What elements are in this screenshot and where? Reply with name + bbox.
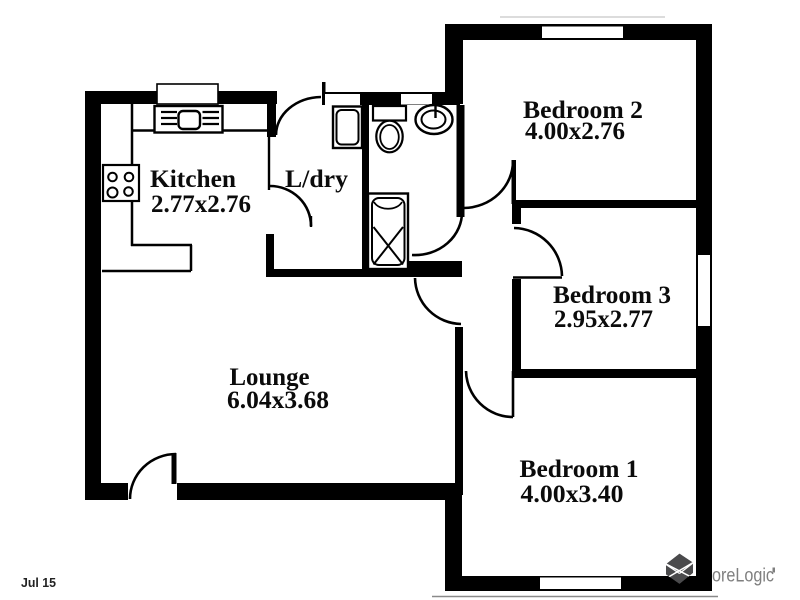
svg-text:Kitchen: Kitchen [150, 166, 236, 193]
svg-text:Bedroom 3: Bedroom 3 [553, 282, 671, 309]
svg-text:6.04x3.68: 6.04x3.68 [227, 387, 329, 414]
svg-text:4.00x3.40: 4.00x3.40 [521, 481, 624, 508]
svg-text:Jul 15: Jul 15 [21, 575, 56, 590]
svg-text:Bedroom 1: Bedroom 1 [520, 456, 639, 483]
svg-text:oreLogic: oreLogic [712, 566, 774, 587]
svg-text:L/dry: L/dry [285, 166, 349, 193]
svg-text:4.00x2.76: 4.00x2.76 [525, 118, 625, 145]
svg-text:2.95x2.77: 2.95x2.77 [554, 306, 653, 333]
svg-text:2.77x2.76: 2.77x2.76 [151, 191, 251, 218]
